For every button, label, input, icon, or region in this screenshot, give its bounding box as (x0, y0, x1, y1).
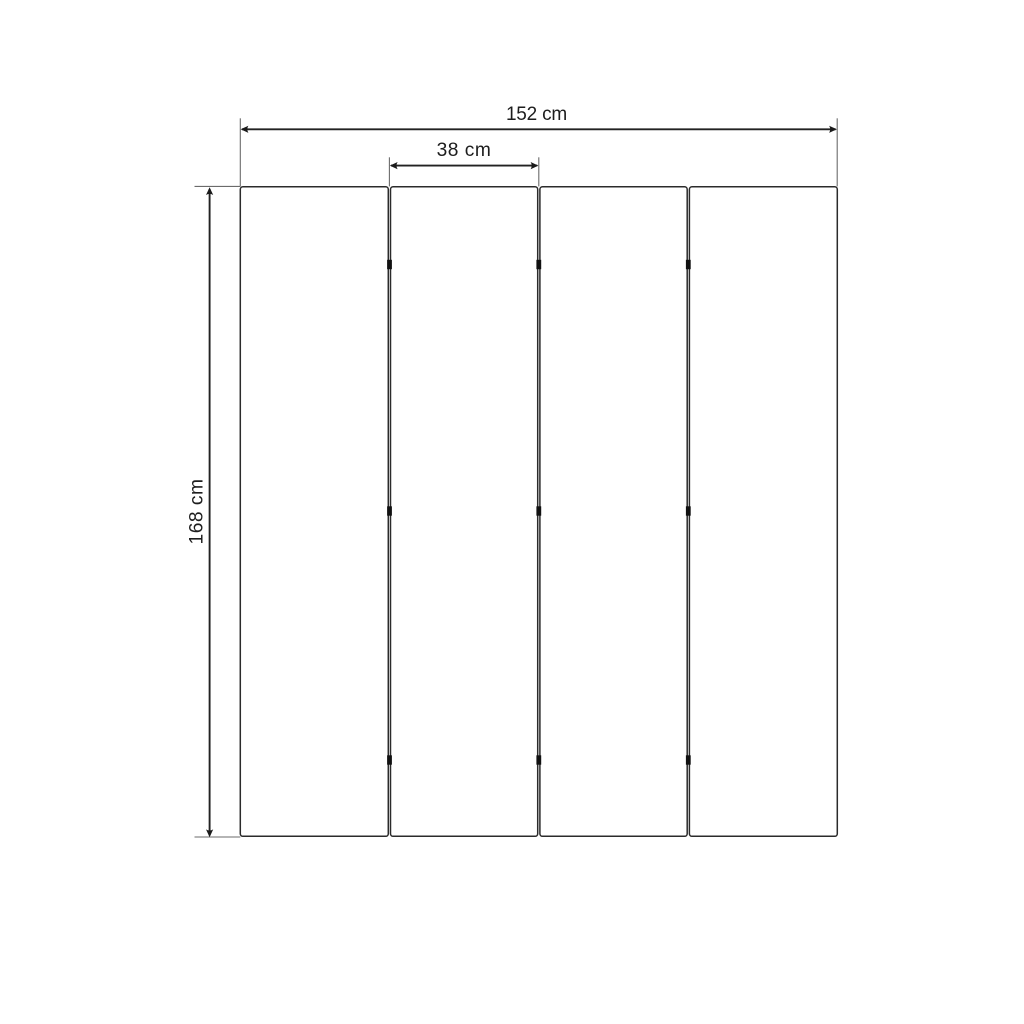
svg-text:38 cm: 38 cm (437, 140, 492, 161)
svg-text:168 cm: 168 cm (187, 479, 208, 545)
svg-text:152 cm: 152 cm (506, 104, 567, 125)
